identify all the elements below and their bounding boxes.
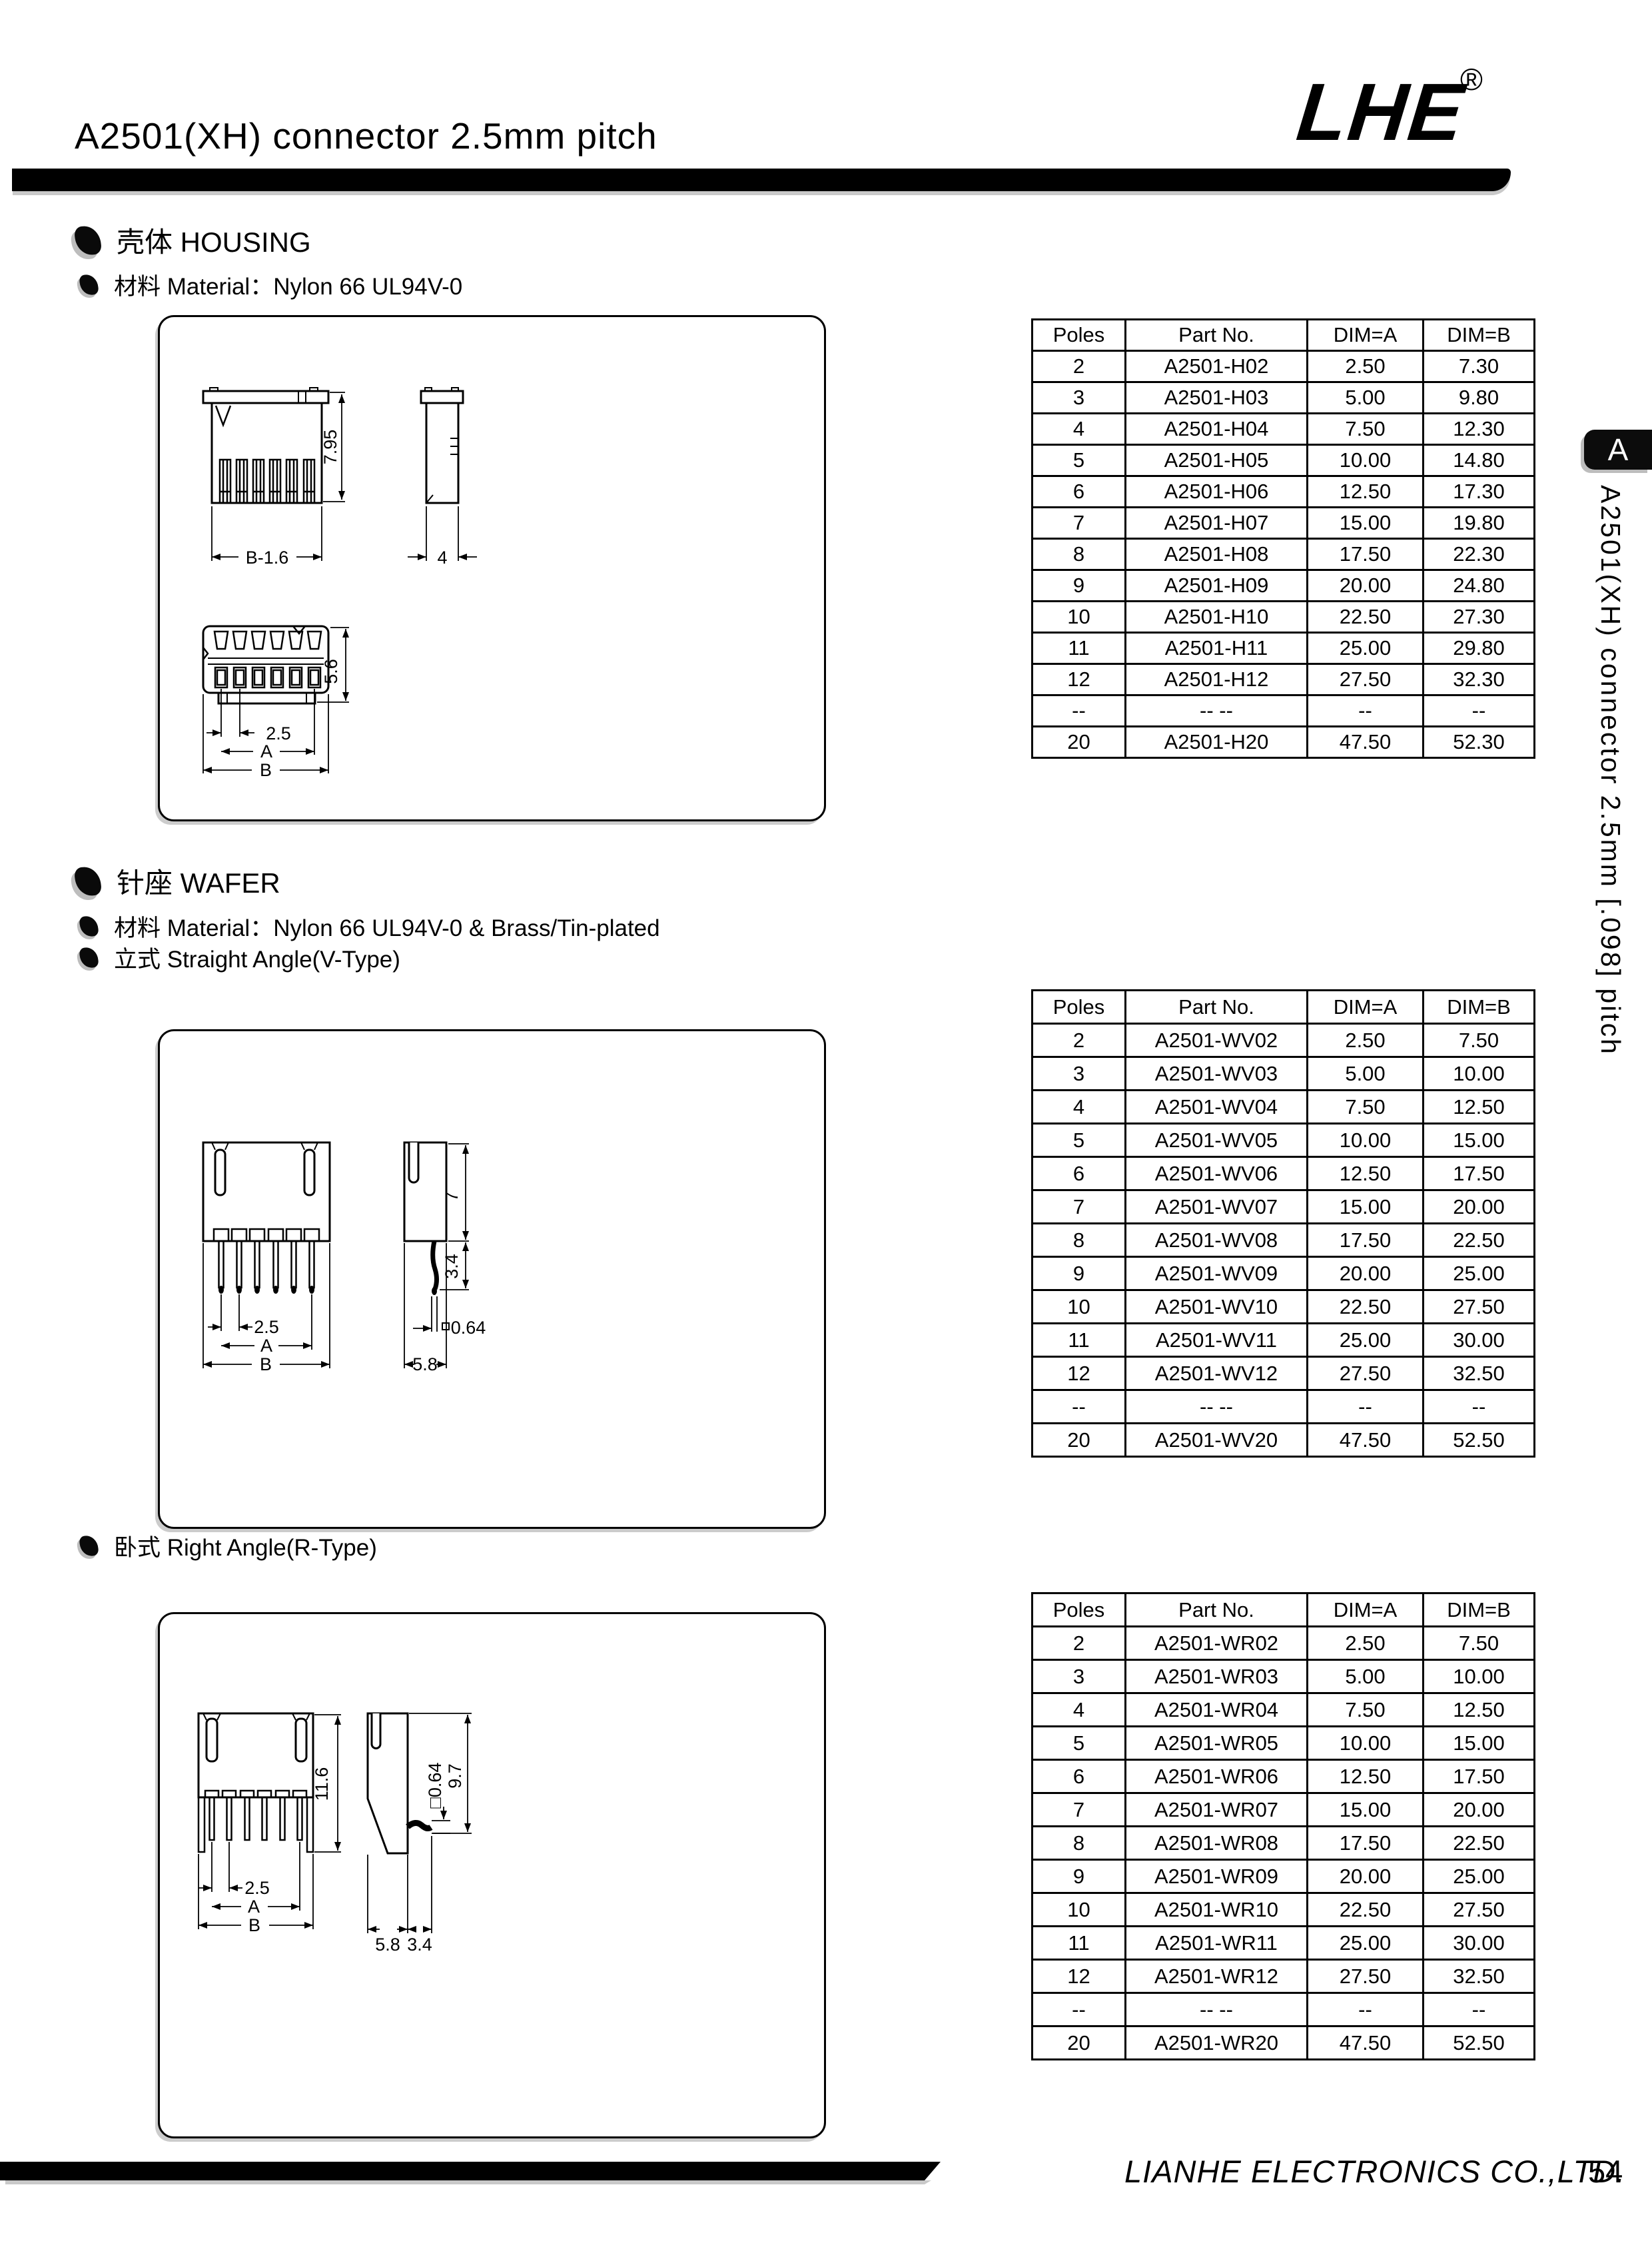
table-cell: 7.50 (1424, 1024, 1535, 1057)
table-cell: 7.30 (1424, 351, 1535, 382)
table-row: 9A2501-WV0920.0025.00 (1032, 1257, 1535, 1290)
table-header-row: PolesPart No.DIM=ADIM=B (1032, 320, 1535, 351)
leaf-bullet-icon (79, 915, 99, 938)
table-cell: A2501-WR11 (1126, 1927, 1308, 1960)
table-cell: 20 (1032, 1424, 1126, 1457)
table-row: 11A2501-H1125.0029.80 (1032, 633, 1535, 664)
table-cell: 2.50 (1308, 1627, 1424, 1660)
table-row: 7A2501-WR0715.0020.00 (1032, 1793, 1535, 1827)
table-cell: 5 (1032, 1727, 1126, 1760)
table-cell: 11 (1032, 1927, 1126, 1960)
table-row: 2A2501-H022.507.30 (1032, 351, 1535, 382)
wafer-r-spec-table: PolesPart No.DIM=ADIM=B2A2501-WR022.507.… (1031, 1592, 1535, 2060)
header-rule (12, 169, 1511, 191)
table-cell: 20.00 (1308, 1860, 1424, 1893)
table-row: ---- ------ (1032, 695, 1535, 727)
table-cell: 3 (1032, 382, 1126, 414)
table-cell: 6 (1032, 1760, 1126, 1793)
wafer-material-text: 材料 Material：Nylon 66 UL94V-0 & Brass/Tin… (114, 909, 660, 943)
table-cell: A2501-H02 (1126, 351, 1308, 382)
table-cell: 24.80 (1424, 570, 1535, 602)
table-cell: -- (1424, 695, 1535, 727)
page-title: A2501(XH) connector 2.5mm pitch (75, 115, 657, 157)
table-cell: 22.50 (1424, 1827, 1535, 1860)
section-heading-text: 针座 WAFER (117, 861, 280, 901)
table-cell: 12 (1032, 1960, 1126, 1993)
wafer-r-drawing-panel (158, 1612, 826, 2138)
table-cell: 5.00 (1308, 382, 1424, 414)
table-row: 7A2501-WV0715.0020.00 (1032, 1190, 1535, 1224)
table-cell: 9 (1032, 1860, 1126, 1893)
table-cell: 15.00 (1424, 1124, 1535, 1157)
table-cell: A2501-WV06 (1126, 1157, 1308, 1190)
table-cell: 12.50 (1308, 476, 1424, 508)
table-cell: 47.50 (1308, 2026, 1424, 2060)
table-row: ---- ------ (1032, 1390, 1535, 1424)
column-header: DIM=B (1424, 991, 1535, 1024)
table-row: 10A2501-WV1022.5027.50 (1032, 1290, 1535, 1324)
wafer-material-row: 材料 Material：Nylon 66 UL94V-0 & Brass/Tin… (80, 909, 660, 943)
table-cell: A2501-WR05 (1126, 1727, 1308, 1760)
wafer-v-spec-table: PolesPart No.DIM=ADIM=B2A2501-WV022.507.… (1031, 989, 1535, 1458)
section-housing-heading: 壳体 HOUSING (75, 220, 311, 260)
table-cell: A2501-H07 (1126, 508, 1308, 539)
table-row: 9A2501-H0920.0024.80 (1032, 570, 1535, 602)
wafer-v-drawing-panel (158, 1029, 826, 1529)
table-header-row: PolesPart No.DIM=ADIM=B (1032, 991, 1535, 1024)
wafer-vtype-row: 立式 Straight Angle(V-Type) (80, 941, 400, 975)
table-cell: 12.50 (1308, 1760, 1424, 1793)
table-row: 5A2501-H0510.0014.80 (1032, 445, 1535, 476)
table-row: 8A2501-WR0817.5022.50 (1032, 1827, 1535, 1860)
table-cell: 10.00 (1308, 1124, 1424, 1157)
column-header: Part No. (1126, 1593, 1308, 1627)
table-cell: 25.00 (1308, 1927, 1424, 1960)
table-cell: 27.50 (1308, 1357, 1424, 1390)
table-row: 6A2501-WV0612.5017.50 (1032, 1157, 1535, 1190)
table-cell: A2501-WV02 (1126, 1024, 1308, 1057)
table-cell: A2501-WR10 (1126, 1893, 1308, 1927)
table-cell: 25.00 (1308, 633, 1424, 664)
table-cell: 4 (1032, 1091, 1126, 1124)
table-cell: A2501-WR06 (1126, 1760, 1308, 1793)
table-row: 10A2501-H1022.5027.30 (1032, 602, 1535, 633)
table-row: 4A2501-H047.5012.30 (1032, 414, 1535, 445)
table-row: 20A2501-H2047.5052.30 (1032, 727, 1535, 758)
table-cell: 9 (1032, 570, 1126, 602)
column-header: DIM=A (1308, 320, 1424, 351)
leaf-bullet-icon (79, 274, 99, 296)
table-cell: 17.50 (1424, 1157, 1535, 1190)
table-cell: A2501-WV12 (1126, 1357, 1308, 1390)
table-cell: 30.00 (1424, 1324, 1535, 1357)
table-cell: 15.00 (1424, 1727, 1535, 1760)
table-cell: -- (1032, 1390, 1126, 1424)
table-row: ---- ------ (1032, 1993, 1535, 2026)
table-cell: 10.00 (1308, 1727, 1424, 1760)
table-cell: A2501-WV03 (1126, 1057, 1308, 1091)
table-cell: 8 (1032, 539, 1126, 570)
table-cell: 10 (1032, 1290, 1126, 1324)
table-row: 3A2501-H035.009.80 (1032, 382, 1535, 414)
table-cell: 5 (1032, 445, 1126, 476)
table-row: 5A2501-WV0510.0015.00 (1032, 1124, 1535, 1157)
table-row: 4A2501-WV047.5012.50 (1032, 1091, 1535, 1124)
table-cell: 30.00 (1424, 1927, 1535, 1960)
table-cell: -- (1032, 695, 1126, 727)
table-cell: A2501-H06 (1126, 476, 1308, 508)
table-cell: A2501-WV05 (1126, 1124, 1308, 1157)
table-cell: 7 (1032, 1793, 1126, 1827)
column-header: DIM=A (1308, 1593, 1424, 1627)
table-row: 3A2501-WV035.0010.00 (1032, 1057, 1535, 1091)
table-cell: A2501-H04 (1126, 414, 1308, 445)
table-cell: -- -- (1126, 695, 1308, 727)
table-cell: 10.00 (1308, 445, 1424, 476)
column-header: Poles (1032, 320, 1126, 351)
housing-material-text: 材料 Material：Nylon 66 UL94V-0 (114, 268, 462, 302)
table-cell: 7.50 (1308, 414, 1424, 445)
housing-spec-table: PolesPart No.DIM=ADIM=B2A2501-H022.507.3… (1031, 318, 1535, 759)
table-cell: A2501-H20 (1126, 727, 1308, 758)
table-cell: 32.30 (1424, 664, 1535, 695)
table-cell: 3 (1032, 1057, 1126, 1091)
table-row: 2A2501-WR022.507.50 (1032, 1627, 1535, 1660)
table-row: 8A2501-H0817.5022.30 (1032, 539, 1535, 570)
table-cell: A2501-H12 (1126, 664, 1308, 695)
table-cell: A2501-WV07 (1126, 1190, 1308, 1224)
column-header: Poles (1032, 1593, 1126, 1627)
table-row: 6A2501-WR0612.5017.50 (1032, 1760, 1535, 1793)
table-cell: 8 (1032, 1827, 1126, 1860)
table-row: 12A2501-WR1227.5032.50 (1032, 1960, 1535, 1993)
table-cell: 2.50 (1308, 351, 1424, 382)
table-cell: A2501-WR02 (1126, 1627, 1308, 1660)
table-cell: 2 (1032, 1627, 1126, 1660)
table-row: 11A2501-WR1125.0030.00 (1032, 1927, 1535, 1960)
housing-drawing-panel (158, 315, 826, 821)
table-cell: A2501-WV11 (1126, 1324, 1308, 1357)
table-cell: A2501-WV08 (1126, 1224, 1308, 1257)
table-cell: 9.80 (1424, 382, 1535, 414)
table-cell: A2501-H10 (1126, 602, 1308, 633)
table-cell: 22.50 (1308, 1893, 1424, 1927)
table-cell: 7.50 (1424, 1627, 1535, 1660)
datasheet-page: A2501(XH) connector 2.5mm pitch LHE ® 壳体… (0, 0, 1652, 2243)
table-cell: 52.30 (1424, 727, 1535, 758)
table-cell: -- -- (1126, 1993, 1308, 2026)
table-cell: 27.50 (1424, 1893, 1535, 1927)
table-cell: 5 (1032, 1124, 1126, 1157)
table-cell: 17.50 (1424, 1760, 1535, 1793)
wafer-rtype-row: 卧式 Right Angle(R-Type) (80, 1529, 377, 1563)
table-cell: 12.50 (1424, 1091, 1535, 1124)
table-row: 5A2501-WR0510.0015.00 (1032, 1727, 1535, 1760)
table-cell: 52.50 (1424, 1424, 1535, 1457)
table-cell: 20.00 (1308, 570, 1424, 602)
table-cell: A2501-WR07 (1126, 1793, 1308, 1827)
column-header: Part No. (1126, 991, 1308, 1024)
table-cell: 32.50 (1424, 1357, 1535, 1390)
table-cell: A2501-WR12 (1126, 1960, 1308, 1993)
table-cell: 5.00 (1308, 1660, 1424, 1693)
table-cell: A2501-H03 (1126, 382, 1308, 414)
table-cell: 4 (1032, 414, 1126, 445)
table-row: 12A2501-WV1227.5032.50 (1032, 1357, 1535, 1390)
page-number: 54 (1588, 2153, 1623, 2190)
table-cell: 10 (1032, 602, 1126, 633)
table-cell: 20.00 (1308, 1257, 1424, 1290)
table-cell: 29.80 (1424, 633, 1535, 664)
table-cell: 27.50 (1308, 664, 1424, 695)
table-cell: A2501-WR08 (1126, 1827, 1308, 1860)
table-cell: -- (1424, 1390, 1535, 1424)
table-cell: A2501-WR03 (1126, 1660, 1308, 1693)
table-cell: 12.30 (1424, 414, 1535, 445)
table-cell: 2.50 (1308, 1024, 1424, 1057)
table-cell: 20.00 (1424, 1190, 1535, 1224)
table-row: 6A2501-H0612.5017.30 (1032, 476, 1535, 508)
table-cell: -- (1424, 1993, 1535, 2026)
table-row: 8A2501-WV0817.5022.50 (1032, 1224, 1535, 1257)
table-cell: 3 (1032, 1660, 1126, 1693)
table-cell: 11 (1032, 633, 1126, 664)
table-row: 10A2501-WR1022.5027.50 (1032, 1893, 1535, 1927)
table-cell: 10.00 (1424, 1660, 1535, 1693)
table-cell: 15.00 (1308, 508, 1424, 539)
table-row: 2A2501-WV022.507.50 (1032, 1024, 1535, 1057)
table-row: 11A2501-WV1125.0030.00 (1032, 1324, 1535, 1357)
leaf-bullet-icon (79, 1535, 99, 1558)
table-cell: 27.50 (1308, 1960, 1424, 1993)
leaf-bullet-icon (74, 224, 102, 256)
table-cell: 15.00 (1308, 1793, 1424, 1827)
table-cell: 52.50 (1424, 2026, 1535, 2060)
sidebar-vertical-title: A2501(XH) connector 2.5mm [.098] pitch (1595, 485, 1626, 1056)
table-cell: 2 (1032, 1024, 1126, 1057)
table-cell: 10 (1032, 1893, 1126, 1927)
table-cell: 19.80 (1424, 508, 1535, 539)
table-cell: 25.00 (1308, 1324, 1424, 1357)
wafer-vtype-text: 立式 Straight Angle(V-Type) (114, 941, 400, 975)
table-row: 3A2501-WR035.0010.00 (1032, 1660, 1535, 1693)
table-cell: -- (1308, 695, 1424, 727)
table-cell: 17.30 (1424, 476, 1535, 508)
column-header: Poles (1032, 991, 1126, 1024)
footer-rule (0, 2162, 941, 2180)
table-cell: 20 (1032, 727, 1126, 758)
table-header-row: PolesPart No.DIM=ADIM=B (1032, 1593, 1535, 1627)
table-cell: 6 (1032, 476, 1126, 508)
leaf-bullet-icon (79, 947, 99, 969)
table-cell: 7 (1032, 1190, 1126, 1224)
table-cell: 47.50 (1308, 1424, 1424, 1457)
column-header: DIM=B (1424, 1593, 1535, 1627)
table-cell: 9 (1032, 1257, 1126, 1290)
table-cell: 17.50 (1308, 539, 1424, 570)
table-cell: 4 (1032, 1693, 1126, 1727)
table-cell: 7.50 (1308, 1091, 1424, 1124)
table-cell: 8 (1032, 1224, 1126, 1257)
table-cell: A2501-WV10 (1126, 1290, 1308, 1324)
table-cell: 12 (1032, 664, 1126, 695)
table-cell: 20 (1032, 2026, 1126, 2060)
table-cell: 2 (1032, 351, 1126, 382)
table-cell: A2501-WV20 (1126, 1424, 1308, 1457)
table-cell: A2501-H09 (1126, 570, 1308, 602)
column-header: DIM=A (1308, 991, 1424, 1024)
table-row: 9A2501-WR0920.0025.00 (1032, 1860, 1535, 1893)
brand-logo: LHE (1293, 65, 1469, 159)
table-cell: A2501-H11 (1126, 633, 1308, 664)
table-cell: 12.50 (1308, 1157, 1424, 1190)
table-cell: 17.50 (1308, 1827, 1424, 1860)
leaf-bullet-icon (74, 865, 102, 897)
table-row: 12A2501-H1227.5032.30 (1032, 664, 1535, 695)
section-index-tab: A (1584, 430, 1652, 470)
table-cell: -- (1308, 1390, 1424, 1424)
table-cell: 7 (1032, 508, 1126, 539)
table-cell: 15.00 (1308, 1190, 1424, 1224)
table-cell: 12.50 (1424, 1693, 1535, 1727)
wafer-rtype-text: 卧式 Right Angle(R-Type) (114, 1529, 377, 1563)
table-row: 20A2501-WV2047.5052.50 (1032, 1424, 1535, 1457)
footer-rule-shadow (5, 2180, 931, 2184)
table-cell: A2501-H05 (1126, 445, 1308, 476)
table-cell: -- (1308, 1993, 1424, 2026)
company-name: LIANHE ELECTRONICS CO.,LTD. (1124, 2153, 1625, 2190)
housing-material-row: 材料 Material：Nylon 66 UL94V-0 (80, 268, 462, 302)
table-cell: A2501-WR20 (1126, 2026, 1308, 2060)
table-cell: A2501-WR04 (1126, 1693, 1308, 1727)
table-cell: A2501-WV09 (1126, 1257, 1308, 1290)
table-row: 7A2501-H0715.0019.80 (1032, 508, 1535, 539)
section-heading-text: 壳体 HOUSING (117, 220, 311, 260)
column-header: Part No. (1126, 320, 1308, 351)
table-cell: 22.50 (1424, 1224, 1535, 1257)
table-cell: A2501-H08 (1126, 539, 1308, 570)
table-cell: 22.30 (1424, 539, 1535, 570)
table-cell: -- (1032, 1993, 1126, 2026)
section-wafer-heading: 针座 WAFER (75, 861, 280, 901)
table-cell: -- -- (1126, 1390, 1308, 1424)
table-cell: 7.50 (1308, 1693, 1424, 1727)
table-cell: 27.30 (1424, 602, 1535, 633)
table-cell: A2501-WV04 (1126, 1091, 1308, 1124)
table-cell: 27.50 (1424, 1290, 1535, 1324)
table-cell: 6 (1032, 1157, 1126, 1190)
table-row: 20A2501-WR2047.5052.50 (1032, 2026, 1535, 2060)
table-cell: 14.80 (1424, 445, 1535, 476)
table-cell: 17.50 (1308, 1224, 1424, 1257)
table-cell: 20.00 (1424, 1793, 1535, 1827)
table-row: 4A2501-WR047.5012.50 (1032, 1693, 1535, 1727)
table-cell: 10.00 (1424, 1057, 1535, 1091)
table-cell: 25.00 (1424, 1257, 1535, 1290)
table-cell: 5.00 (1308, 1057, 1424, 1091)
table-cell: 25.00 (1424, 1860, 1535, 1893)
table-cell: 12 (1032, 1357, 1126, 1390)
table-cell: 22.50 (1308, 602, 1424, 633)
table-cell: A2501-WR09 (1126, 1860, 1308, 1893)
column-header: DIM=B (1424, 320, 1535, 351)
table-cell: 47.50 (1308, 727, 1424, 758)
table-cell: 32.50 (1424, 1960, 1535, 1993)
table-cell: 11 (1032, 1324, 1126, 1357)
table-cell: 22.50 (1308, 1290, 1424, 1324)
registered-mark-icon: ® (1460, 61, 1483, 97)
